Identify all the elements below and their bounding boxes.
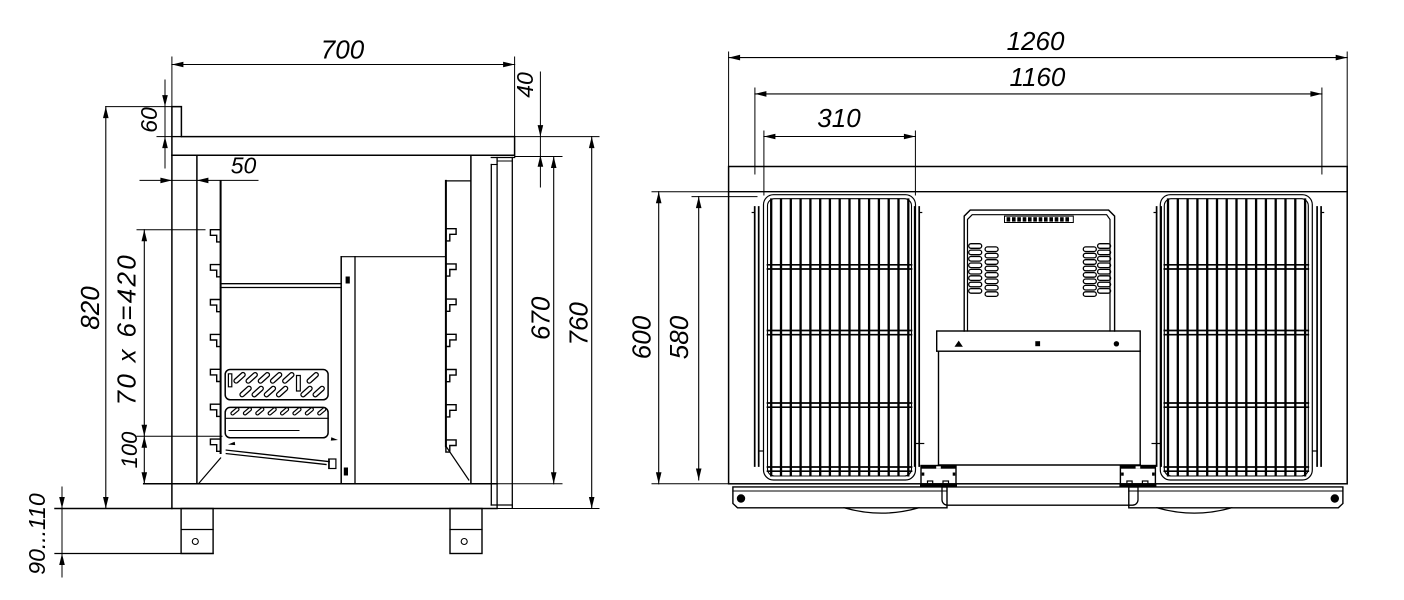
svg-text:670: 670: [526, 296, 556, 340]
svg-text:1160: 1160: [1009, 62, 1065, 92]
svg-text:100: 100: [117, 431, 142, 468]
svg-text:50: 50: [231, 153, 257, 179]
svg-text:310: 310: [817, 103, 861, 133]
svg-text:90...110: 90...110: [24, 493, 50, 575]
svg-text:1260: 1260: [1007, 26, 1065, 56]
svg-text:820: 820: [75, 286, 105, 330]
svg-text:60: 60: [136, 107, 162, 133]
svg-text:760: 760: [564, 302, 594, 346]
svg-text:40: 40: [512, 72, 538, 98]
svg-text:580: 580: [664, 315, 694, 359]
svg-text:70 x 6=420: 70 x 6=420: [111, 253, 141, 405]
svg-text:600: 600: [627, 315, 657, 359]
svg-text:700: 700: [321, 35, 365, 65]
